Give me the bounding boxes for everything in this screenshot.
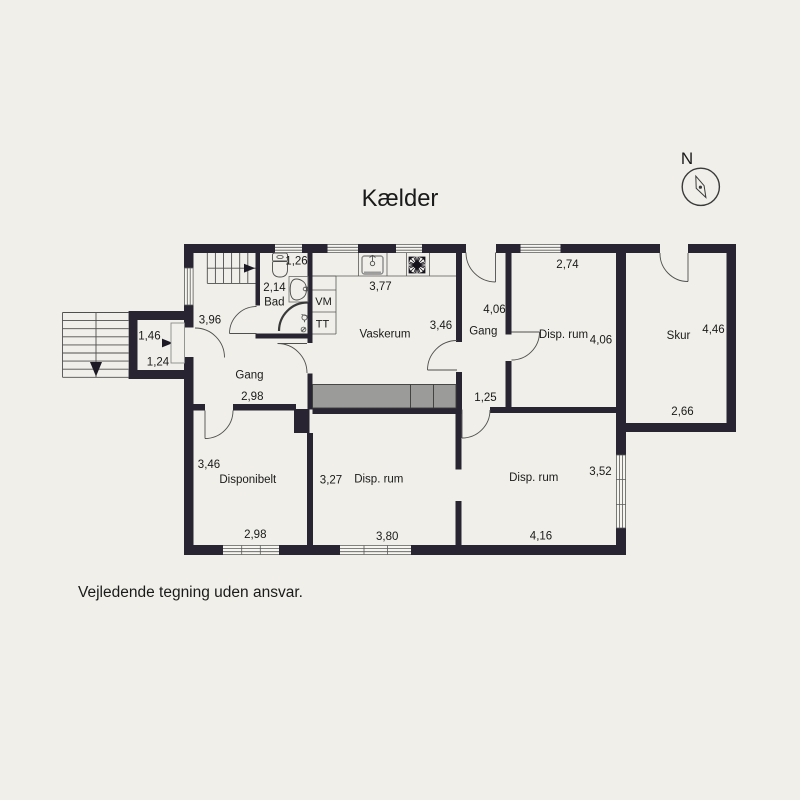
svg-text:Disp. rum: Disp. rum	[539, 329, 588, 341]
svg-text:1,46: 1,46	[138, 331, 160, 343]
svg-text:Disponibelt: Disponibelt	[219, 474, 277, 486]
svg-text:1,24: 1,24	[147, 357, 170, 369]
svg-text:4,06: 4,06	[590, 335, 612, 347]
svg-text:3,80: 3,80	[376, 531, 398, 543]
svg-text:3,27: 3,27	[320, 475, 342, 487]
svg-text:N: N	[681, 149, 693, 168]
svg-text:Bad: Bad	[264, 297, 284, 309]
svg-text:3,52: 3,52	[589, 466, 611, 478]
svg-text:1,26: 1,26	[285, 256, 307, 268]
svg-text:2,98: 2,98	[241, 391, 263, 403]
svg-text:3,46: 3,46	[430, 320, 452, 332]
svg-text:4,16: 4,16	[530, 531, 552, 543]
svg-text:Vejledende tegning uden ansvar: Vejledende tegning uden ansvar.	[78, 584, 303, 601]
svg-text:2,66: 2,66	[671, 406, 693, 418]
svg-text:3,96: 3,96	[199, 315, 221, 327]
svg-text:TT: TT	[316, 318, 330, 330]
svg-text:2,98: 2,98	[244, 529, 266, 541]
svg-text:Gang: Gang	[469, 326, 497, 338]
svg-text:VM: VM	[315, 296, 332, 308]
svg-text:Disp. rum: Disp. rum	[509, 472, 558, 484]
svg-text:1,25: 1,25	[474, 392, 496, 404]
svg-text:4,06: 4,06	[483, 304, 505, 316]
svg-text:Gang: Gang	[235, 370, 263, 382]
svg-text:3,46: 3,46	[198, 459, 220, 471]
svg-text:Vaskerum: Vaskerum	[360, 329, 411, 341]
svg-text:Disp. rum: Disp. rum	[354, 473, 403, 485]
svg-text:3,77: 3,77	[369, 281, 391, 293]
svg-text:Skur: Skur	[667, 330, 691, 342]
svg-text:2,74: 2,74	[556, 259, 579, 271]
svg-text:2,14: 2,14	[263, 282, 286, 294]
svg-text:Kælder: Kælder	[362, 185, 439, 212]
svg-text:4,46: 4,46	[702, 324, 724, 336]
